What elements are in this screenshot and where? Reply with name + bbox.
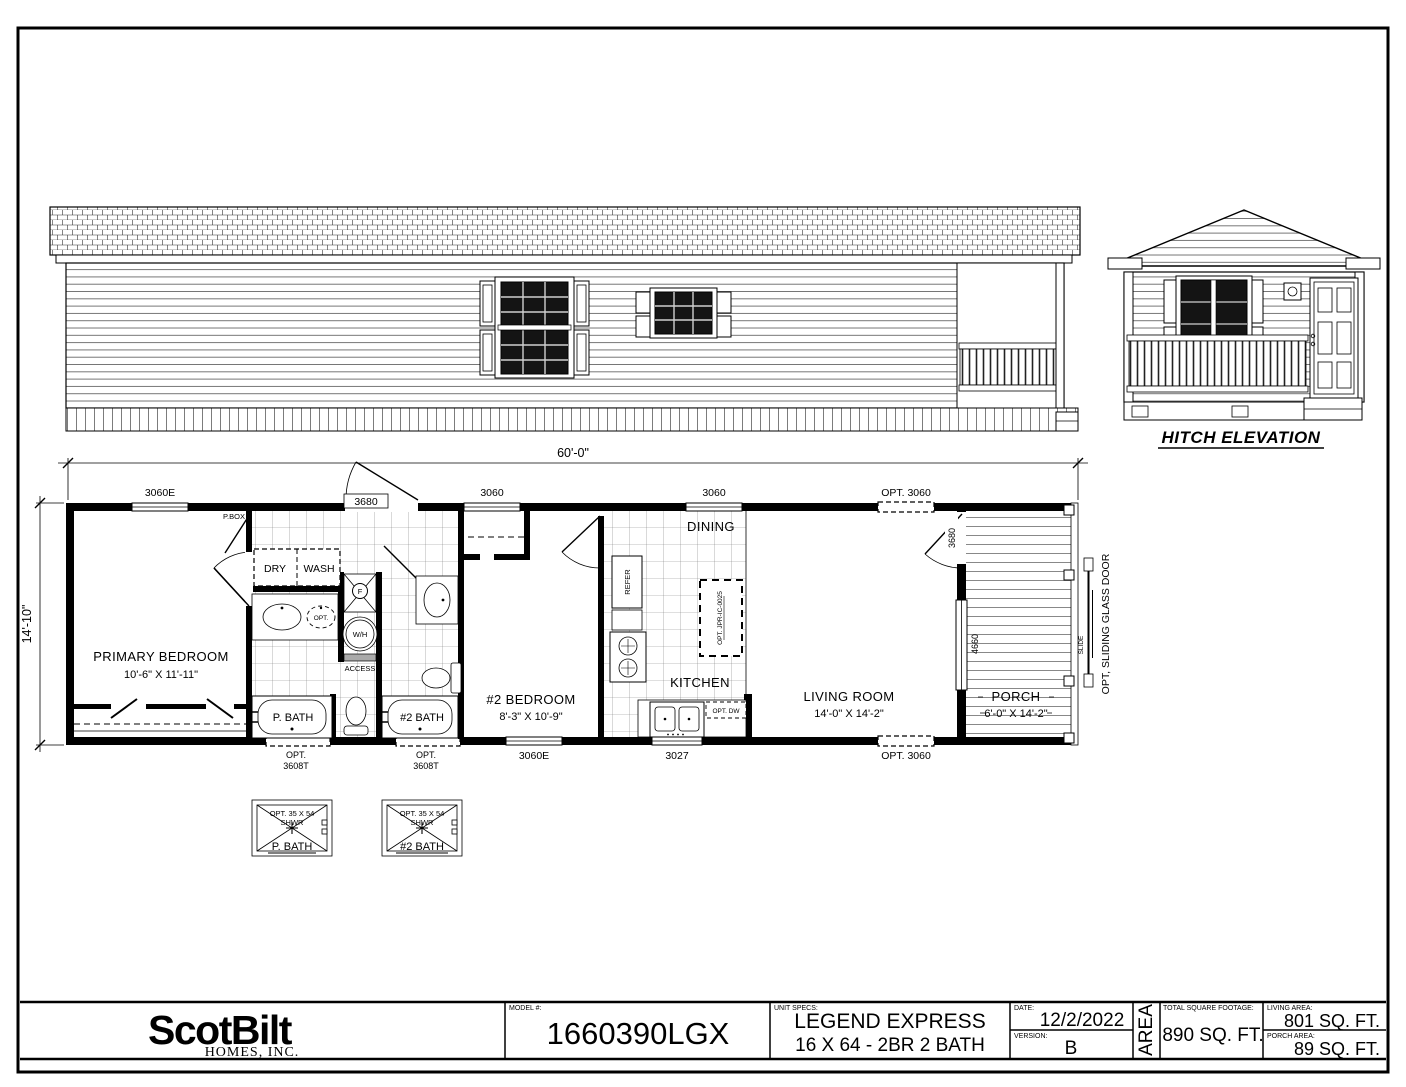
window-3060E-top: 3060E (132, 487, 188, 511)
version-cell: VERSION: B (1014, 1033, 1077, 1059)
drawing-sheet: HITCH ELEVATION 60'-0" 14'-10" (0, 0, 1406, 1087)
kitchen-island: OPT. JPR-IC-0025 (700, 580, 742, 656)
porch-area-value: 89 SQ. FT. (1294, 1039, 1380, 1059)
hitch-elevation-label: HITCH ELEVATION (1162, 428, 1321, 447)
pbath-vanity: OPT. (252, 594, 338, 640)
blueprint-canvas: HITCH ELEVATION 60'-0" 14'-10" (0, 0, 1406, 1087)
model-value: 1660390LGX (547, 1016, 730, 1051)
room-labels: PRIMARY BEDROOM 10'-6" X 11'-11" #2 BEDR… (93, 519, 1054, 723)
dimension-width: 60'-0" (58, 446, 1088, 500)
porch-label: PORCH (992, 689, 1041, 704)
pbath-label: P. BATH (273, 712, 314, 724)
porch-area-cell: PORCH AREA: 89 SQ. FT. (1267, 1033, 1380, 1059)
dining-label: DINING (687, 519, 735, 534)
unit-specs-cell: UNIT SPECS: LEGEND EXPRESS 16 X 64 - 2BR… (774, 1005, 986, 1056)
title-block: ScotBilt HOMES, INC. MODEL #: 1660390LGX… (20, 1002, 1386, 1060)
bath2-tub: #2 BATH (382, 696, 458, 738)
elevation-window-small (636, 288, 731, 338)
date-label: DATE: (1014, 1005, 1034, 1012)
svg-text:3608T: 3608T (413, 761, 439, 771)
svg-text:ACCESS: ACCESS (345, 664, 376, 673)
svg-text:WASH: WASH (303, 563, 334, 575)
area-label: AREA (1136, 1004, 1157, 1056)
floor-plan: 60'-0" 14'-10" (20, 446, 1112, 771)
hitch-roof (1108, 210, 1380, 266)
skirting (66, 408, 1078, 431)
bedroom2-size: 8'-3" X 10'-9" (499, 711, 562, 723)
total-sqft-label: TOTAL SQUARE FOOTAGE: (1163, 1005, 1254, 1012)
svg-text:#2 BATH: #2 BATH (400, 841, 444, 853)
svg-text:3060E: 3060E (145, 487, 175, 499)
shower-option-pbath: OPT. 35 X 54 SHWR P. BATH (252, 800, 332, 856)
access-panel: ACCESS (344, 654, 376, 673)
svg-text:SHWR: SHWR (411, 818, 434, 827)
opt-dishwasher: OPT. DW (706, 702, 746, 718)
pbath-toilet (344, 697, 368, 735)
svg-text:3060E: 3060E (519, 750, 549, 762)
elevation-porch (957, 263, 1064, 408)
porch-size: 6'-0" X 14'-2" (984, 708, 1047, 720)
kitchen-label: KITCHEN (670, 675, 730, 690)
primary-bedroom-label: PRIMARY BEDROOM (93, 649, 229, 664)
porch-steps-side (1056, 412, 1078, 431)
svg-text:OPT. 35 X 54: OPT. 35 X 54 (400, 809, 445, 818)
unit-specs-line1: LEGEND EXPRESS (794, 1010, 985, 1033)
svg-text:OPT, SLIDING GLASS DOOR: OPT, SLIDING GLASS DOOR (1100, 553, 1112, 694)
living-room-size: 14'-0" X 14'-2" (814, 708, 884, 720)
svg-text:REFER: REFER (623, 569, 632, 595)
hitch-entry-door (1310, 278, 1358, 398)
svg-text:OPT. 3060: OPT. 3060 (881, 487, 931, 499)
unit-specs-line2: 16 X 64 - 2BR 2 BATH (795, 1035, 985, 1056)
hitch-porch-rail (1127, 335, 1308, 392)
svg-text:OPT. 3060: OPT. 3060 (881, 750, 931, 762)
range (610, 632, 646, 682)
bath2-label: #2 BATH (400, 712, 444, 724)
svg-text:3680: 3680 (947, 528, 957, 548)
svg-text:OPT.: OPT. (416, 750, 436, 760)
svg-text:3608T: 3608T (283, 761, 309, 771)
bedroom2-label: #2 BEDROOM (486, 692, 575, 707)
porch-door: 3680 (925, 512, 966, 568)
bath2-vanity (416, 576, 458, 624)
opt-sink-label: OPT. (314, 615, 329, 622)
primary-bedroom-size: 10'-6" X 11'-11" (124, 669, 198, 681)
svg-text:4660: 4660 (970, 634, 980, 654)
sliding-glass-door-note: SLIDE OPT, SLIDING GLASS DOOR (1078, 553, 1112, 694)
shower-option-bath2: OPT. 35 X 54 SHWR #2 BATH (382, 800, 462, 856)
dimension-depth: 14'-10" (20, 496, 64, 752)
bedroom2-closet (464, 511, 530, 560)
side-elevation (50, 207, 1080, 431)
svg-text:SLIDE: SLIDE (1078, 635, 1085, 654)
svg-text:OPT. JPR-IC-0025: OPT. JPR-IC-0025 (717, 591, 724, 645)
living-room-label: LIVING ROOM (803, 689, 894, 704)
living-area-cell: LIVING AREA: 801 SQ. FT. (1267, 1005, 1380, 1031)
svg-text:P. BATH: P. BATH (272, 841, 313, 853)
window-opt3060-top: OPT. 3060 (878, 487, 934, 512)
entry-door-3680: 3680 (344, 462, 418, 512)
total-sqft-value: 890 SQ. FT. (1162, 1025, 1263, 1046)
water-heater: W/H (343, 617, 377, 651)
kitchen-counter-upper (612, 610, 642, 630)
window-opt3608T-1: OPT. 3608T (266, 737, 330, 771)
refrigerator: REFER (612, 556, 642, 608)
primary-closet (74, 699, 246, 731)
version-value: B (1065, 1038, 1078, 1059)
fascia (56, 255, 1072, 263)
model-cell: MODEL #: 1660390LGX (509, 1005, 730, 1051)
overall-depth-dim: 14'-10" (20, 605, 34, 644)
date-value: 12/2/2022 (1040, 1010, 1125, 1031)
porch-light (1284, 283, 1301, 300)
window-opt3608T-2: OPT. 3608T (396, 737, 460, 771)
svg-text:OPT. DW: OPT. DW (712, 708, 740, 715)
svg-text:3060: 3060 (702, 487, 726, 499)
dryer-washer: DRY WASH (254, 549, 340, 586)
svg-text:SHWR: SHWR (281, 818, 304, 827)
hitch-elevation: HITCH ELEVATION (1108, 210, 1380, 448)
svg-text:P.BOX: P.BOX (223, 512, 245, 521)
window-opt3060-bottom: OPT. 3060 (878, 736, 934, 762)
svg-text:3027: 3027 (665, 750, 689, 762)
roof-shingles (50, 207, 1080, 255)
window-3060-b: 3060 (686, 487, 742, 511)
window-3060E-bottom: 3060E (506, 737, 562, 762)
svg-text:OPT.: OPT. (286, 750, 306, 760)
logo-subtext: HOMES, INC. (205, 1045, 300, 1060)
total-sqft-cell: TOTAL SQUARE FOOTAGE: 890 SQ. FT. (1162, 1005, 1263, 1046)
hitch-base (1124, 402, 1304, 420)
svg-text:F: F (358, 587, 363, 596)
date-cell: DATE: 12/2/2022 (1014, 1005, 1124, 1031)
window-3027: 3027 (652, 737, 702, 762)
elevation-window-large (480, 277, 589, 378)
pbath-tub: P. BATH (252, 696, 332, 738)
company-logo: ScotBilt HOMES, INC. (148, 1007, 299, 1060)
version-label: VERSION: (1014, 1033, 1048, 1040)
window-3060-a: 3060 (464, 487, 520, 511)
model-label: MODEL #: (509, 1005, 541, 1012)
living-area-value: 801 SQ. FT. (1284, 1011, 1380, 1031)
furnace: F (344, 574, 376, 612)
svg-text:DRY: DRY (264, 563, 286, 575)
overall-width-dim: 60'-0" (557, 446, 589, 460)
svg-text:W/H: W/H (353, 630, 368, 639)
svg-text:3060: 3060 (480, 487, 504, 499)
exterior-walls (66, 503, 1078, 745)
svg-text:3680: 3680 (354, 496, 378, 508)
svg-text:OPT. 35 X 54: OPT. 35 X 54 (270, 809, 315, 818)
